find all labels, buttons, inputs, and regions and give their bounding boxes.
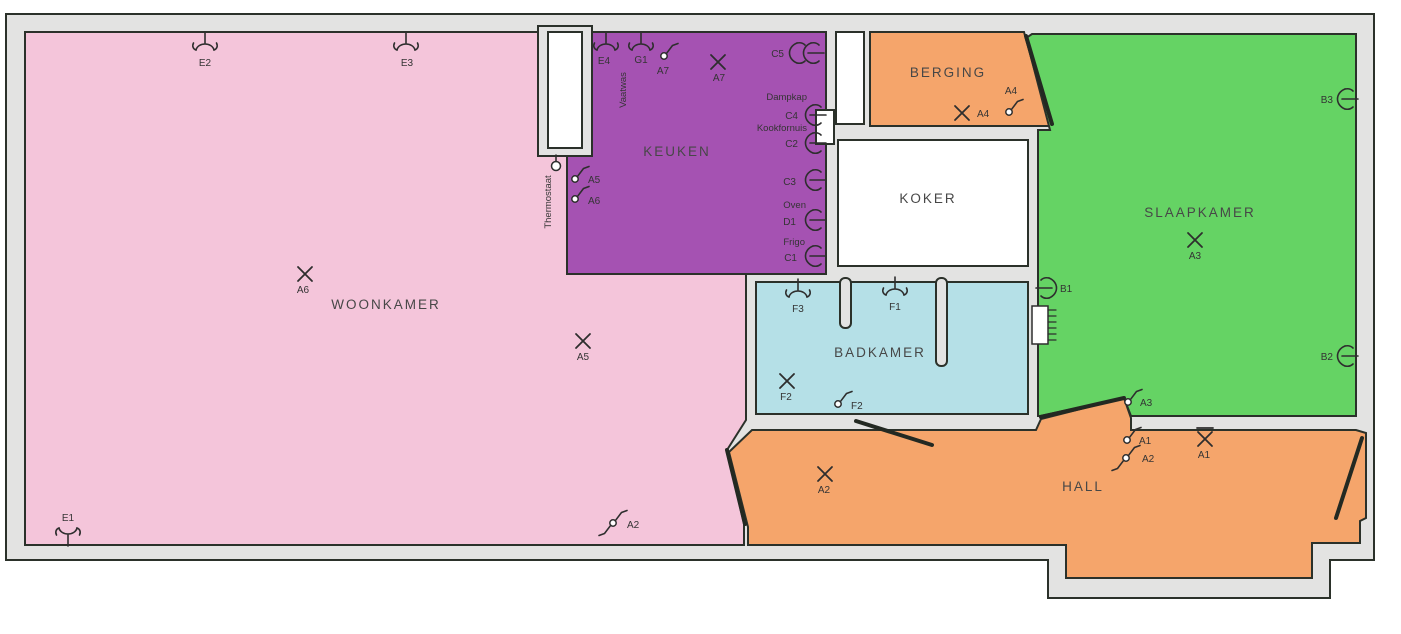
- device-label-F2-switch: F2: [851, 401, 863, 412]
- device-label-A2-switch-hall: A2: [1142, 454, 1155, 465]
- device-label-C3: C3: [783, 177, 796, 188]
- device-label-E3: E3: [401, 58, 414, 69]
- annotation-0: Thermostaat: [543, 175, 554, 229]
- label-koker: KOKER: [899, 191, 956, 206]
- device-label-A4-switch: A4: [1005, 86, 1018, 97]
- device-label-A4-light: A4: [977, 109, 990, 120]
- shaft: [836, 32, 864, 124]
- annotation-2: Dampkap: [766, 92, 807, 103]
- label-keuken: KEUKEN: [643, 144, 711, 159]
- device-label-A5-light: A5: [577, 352, 590, 363]
- device-label-B1: B1: [1060, 284, 1073, 295]
- device-label-A3-switch: A3: [1140, 398, 1153, 409]
- device-label-E2: E2: [199, 58, 212, 69]
- device-label-F3: F3: [792, 304, 804, 315]
- device-label-D1: D1: [783, 217, 796, 228]
- annotation-1: Vaatwas: [618, 72, 629, 108]
- device-label-A1-switch: A1: [1139, 436, 1152, 447]
- device-label-B2: B2: [1321, 352, 1334, 363]
- room-slaapkamer: [1026, 34, 1356, 416]
- device-label-A7-switch: A7: [657, 66, 670, 77]
- device-label-C5: C5: [771, 49, 784, 60]
- label-berging: BERGING: [910, 65, 986, 80]
- device-label-B3: B3: [1321, 95, 1334, 106]
- device-label-F2-light: F2: [780, 392, 792, 403]
- device-label-E1: E1: [62, 513, 75, 524]
- device-label-C4: C4: [785, 111, 798, 122]
- device-label-A5-switch: A5: [588, 175, 601, 186]
- device-label-A6-light: A6: [297, 285, 310, 296]
- label-slaapkamer: SLAAPKAMER: [1144, 205, 1256, 220]
- device-label-A1-wall-light: A1: [1198, 450, 1211, 461]
- device-label-C1: C1: [784, 253, 797, 264]
- annotation-3: Kookfornuis: [757, 123, 807, 134]
- floorplan-page: WOONKAMER KEUKEN BERGING KOKER SLAAPKAME…: [0, 0, 1401, 634]
- wall-recess-inner: [548, 32, 582, 148]
- device-label-A2-light-hall: A2: [818, 485, 831, 496]
- device-label-G1: G1: [634, 55, 648, 66]
- annotation-4: Oven: [783, 200, 806, 211]
- device-label-F1: F1: [889, 302, 901, 313]
- annotation-5: Frigo: [783, 237, 805, 248]
- device-label-C2: C2: [785, 139, 798, 150]
- label-badkamer: BADKAMER: [834, 345, 926, 360]
- device-label-A6-switch: A6: [588, 196, 601, 207]
- label-woonkamer: WOONKAMER: [331, 297, 441, 312]
- device-label-A3-light: A3: [1189, 251, 1202, 262]
- device-label-A2-switch-woonkamer: A2: [627, 520, 640, 531]
- label-hall: HALL: [1062, 479, 1104, 494]
- stub-wall-2: [936, 278, 947, 366]
- device-label-A7-light: A7: [713, 73, 726, 84]
- stub-wall-1: [840, 278, 851, 328]
- floorplan-svg: WOONKAMER KEUKEN BERGING KOKER SLAAPKAME…: [0, 0, 1401, 634]
- device-label-E4: E4: [598, 56, 611, 67]
